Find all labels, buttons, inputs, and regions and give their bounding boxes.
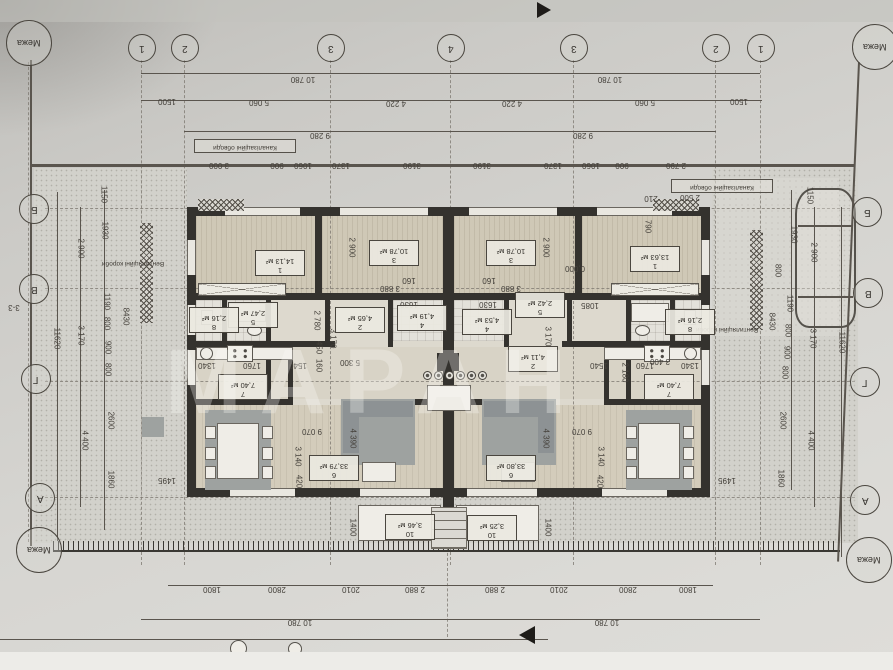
dimension-label: 2 900 [541,225,550,269]
dimension-label: 2800 [255,584,299,593]
dimension-label: 1495 [145,475,189,484]
boundary-label: Межа [17,38,41,48]
grid-bubble-label: 1 [758,43,764,54]
dimension-label: 800 [773,248,782,292]
dimension-label: 1800 [666,584,710,593]
paper-margin-bottom [0,652,893,670]
dimension-label: 2 790 [654,160,698,169]
dimension-label: 790 [643,204,652,248]
dimension-label: 1860 [106,457,115,501]
room-area: 2,16 м² [668,316,712,325]
dimension-label: 1930 [100,208,109,252]
dimension-label: 3 170 [76,313,85,357]
dimension-label: 2 900 [809,230,818,274]
room-number: 3 [489,255,533,264]
grid-bubble: В [853,278,883,308]
grid-bubble: 3 [317,34,345,62]
dimension-label: 3 170 [808,316,817,360]
room-label: 633,80 м² [486,455,536,481]
grid-bubble-label: 3 [571,43,577,54]
room-area: 4,53 м² [465,316,509,325]
room-label: 114,13 м² [255,250,305,276]
dimension-label: 1500 [145,96,189,105]
dimension-label: 4 220 [374,98,418,107]
dimension-label: 1495 [705,475,749,484]
room-number: 3 [372,255,416,264]
dimension-label: 4 400 [80,418,89,462]
grid-bubble: Б [852,197,882,227]
dimension-label: 10 780 [278,617,322,626]
grid-bubble-label: Г [862,377,867,388]
room-number: 8 [668,324,712,333]
boundary-label: Межа [857,555,881,565]
dimension-label: 11620 [52,316,61,360]
boundary-bubble: Межа [846,537,892,583]
floor-plan-scan: 10 78010 78015005 0604 2204 2205 0601500… [0,0,893,670]
dimension-label: 2010 [329,584,373,593]
room-label: 633,79 м² [309,455,359,481]
dimension-label: 3190 [390,160,434,169]
dimension-label: 800 [780,350,789,394]
room-number: 6 [489,470,533,479]
room-label: 113,63 м² [630,246,680,272]
dimension-label: 800 [103,347,112,391]
room-number: 5 [518,307,562,316]
room-area: 33,80 м² [489,462,533,471]
dimension-label: 1085 [568,300,612,309]
grid-bubble: 4 [437,34,465,62]
boundary-label: Межа [863,42,887,52]
boundary-bubble: Межа [16,527,62,573]
annotation-note: Вентиляційні короби [85,257,181,267]
room-label: 310,78 м² [369,240,419,266]
dimension-label: 4 220 [490,98,534,107]
room-area: 13,63 м² [633,253,677,262]
room-area: 2,16 м² [192,314,236,323]
grid-bubble-label: 4 [448,43,454,54]
dimension-label: 2 900 [347,225,356,269]
dimension-label: 10 780 [281,74,325,83]
room-label: 77,40 м² [644,374,694,400]
dimension-label: 1400 [543,505,552,549]
grid-bubble-label: Г [33,374,38,385]
dimension-label: 4 400 [806,418,815,462]
room-number: 1 [633,261,677,270]
dimension-label: 0,000 [553,263,597,272]
dimension-label: 1630 [466,299,510,308]
dimension-label: 160 [467,275,511,284]
grid-bubble-label: Б [31,204,38,215]
room-area: 10,78 м² [372,247,416,256]
dimension-label: 1400 [348,505,357,549]
dimension-label: 1930 [789,212,798,256]
grid-bubble-label: 2 [182,43,188,54]
grid-bubble: 1 [747,34,775,62]
grid-bubble: Г [21,364,51,394]
dimension-label: 1370 [319,160,363,169]
room-area: 4,19 м² [400,312,444,321]
room-area: 4,65 м² [338,314,382,323]
room-area: 3,25 м² [470,522,514,531]
dimension-label: 2 880 [473,584,517,593]
grid-bubble-label: 1 [139,43,145,54]
grid-bubble: 2 [702,34,730,62]
dimension-label: 900 [600,160,644,169]
room-number: 1 [258,265,302,274]
dimension-label: 10 780 [588,74,632,83]
dimension-label: 2800 [606,584,650,593]
room-label: 52,42 м² [515,292,565,318]
dimension-label: 3190 [460,160,504,169]
room-area: 14,13 м² [258,257,302,266]
room-label: 103,46 м² [385,514,435,540]
dimension-label: 420 [595,459,604,503]
grid-bubble: А [25,483,55,513]
room-area: 3,46 м² [388,521,432,530]
dimension-label: 1800 [190,584,234,593]
grid-bubble: 3 [560,34,588,62]
watermark: МАРАН [165,330,584,435]
room-number: 4 [400,320,444,329]
dimension-label: 2 180 [620,350,629,394]
room-label: 82,16 м² [665,309,715,335]
grid-bubble: Б [19,194,49,224]
grid-bubble-label: Б [864,207,871,218]
dimension-label: 9 280 [561,130,605,139]
dimension-label: 2600 [106,398,115,442]
grid-bubble: В [19,274,49,304]
grid-bubble-label: А [862,495,869,506]
grid-bubble-label: 3 [328,43,334,54]
grid-bubble: А [850,485,880,515]
boundary-bubble: Межа [852,24,893,70]
dimension-label: 5 060 [623,97,667,106]
room-area: 10,78 м² [489,247,533,256]
dimension-label: 8430 [767,299,776,343]
annotation-note: Каналізаційні обводи [194,139,296,153]
dimension-label: 1340 [668,360,712,369]
grid-bubble: 1 [128,34,156,62]
dimension-label: 420 [294,459,303,503]
grid-bubble-label: В [31,284,38,295]
dimension-label: 1500 [717,96,761,105]
dimension-label: 3 000 [197,160,241,169]
grid-bubble-label: В [865,288,872,299]
grid-bubble: Г [850,367,880,397]
dimension-label: 8430 [121,294,130,338]
room-label: 44,19 м² [397,305,447,331]
boundary-bubble: Межа [6,20,52,66]
dimension-label: 9 280 [298,130,342,139]
dimension-label: 11620 [837,320,846,364]
dimension-label: 1860 [776,456,785,500]
dimension-label: 2 900 [76,226,85,270]
dimension-label: 160 [387,275,431,284]
room-number: 10 [470,530,514,539]
dimension-label: 2010 [537,584,581,593]
dimension-label: 10 780 [585,617,629,626]
room-area: 33,79 м² [312,462,356,471]
dimension-label: 2600 [778,398,787,442]
dimension-label: 1760 [623,360,667,369]
room-area: 7,40 м² [647,381,691,390]
room-number: 6 [312,470,356,479]
grid-bubble-label: 2 [713,43,719,54]
room-number: 7 [647,389,691,398]
room-label: 103,25 м² [467,515,517,541]
grid-bubble: 2 [171,34,199,62]
room-area: 2,42 м² [518,299,562,308]
grid-bubble-label: А [37,493,44,504]
dimension-label: 5 060 [237,97,281,106]
dimension-label: 210 [629,193,673,202]
dimension-label: 1150 [805,173,814,217]
room-number: 10 [388,529,432,538]
room-label: 310,78 м² [486,240,536,266]
dimension-label: 2 880 [393,584,437,593]
annotation-note: Каналізаційні обводи [671,179,773,193]
boundary-label: Межа [27,545,51,555]
